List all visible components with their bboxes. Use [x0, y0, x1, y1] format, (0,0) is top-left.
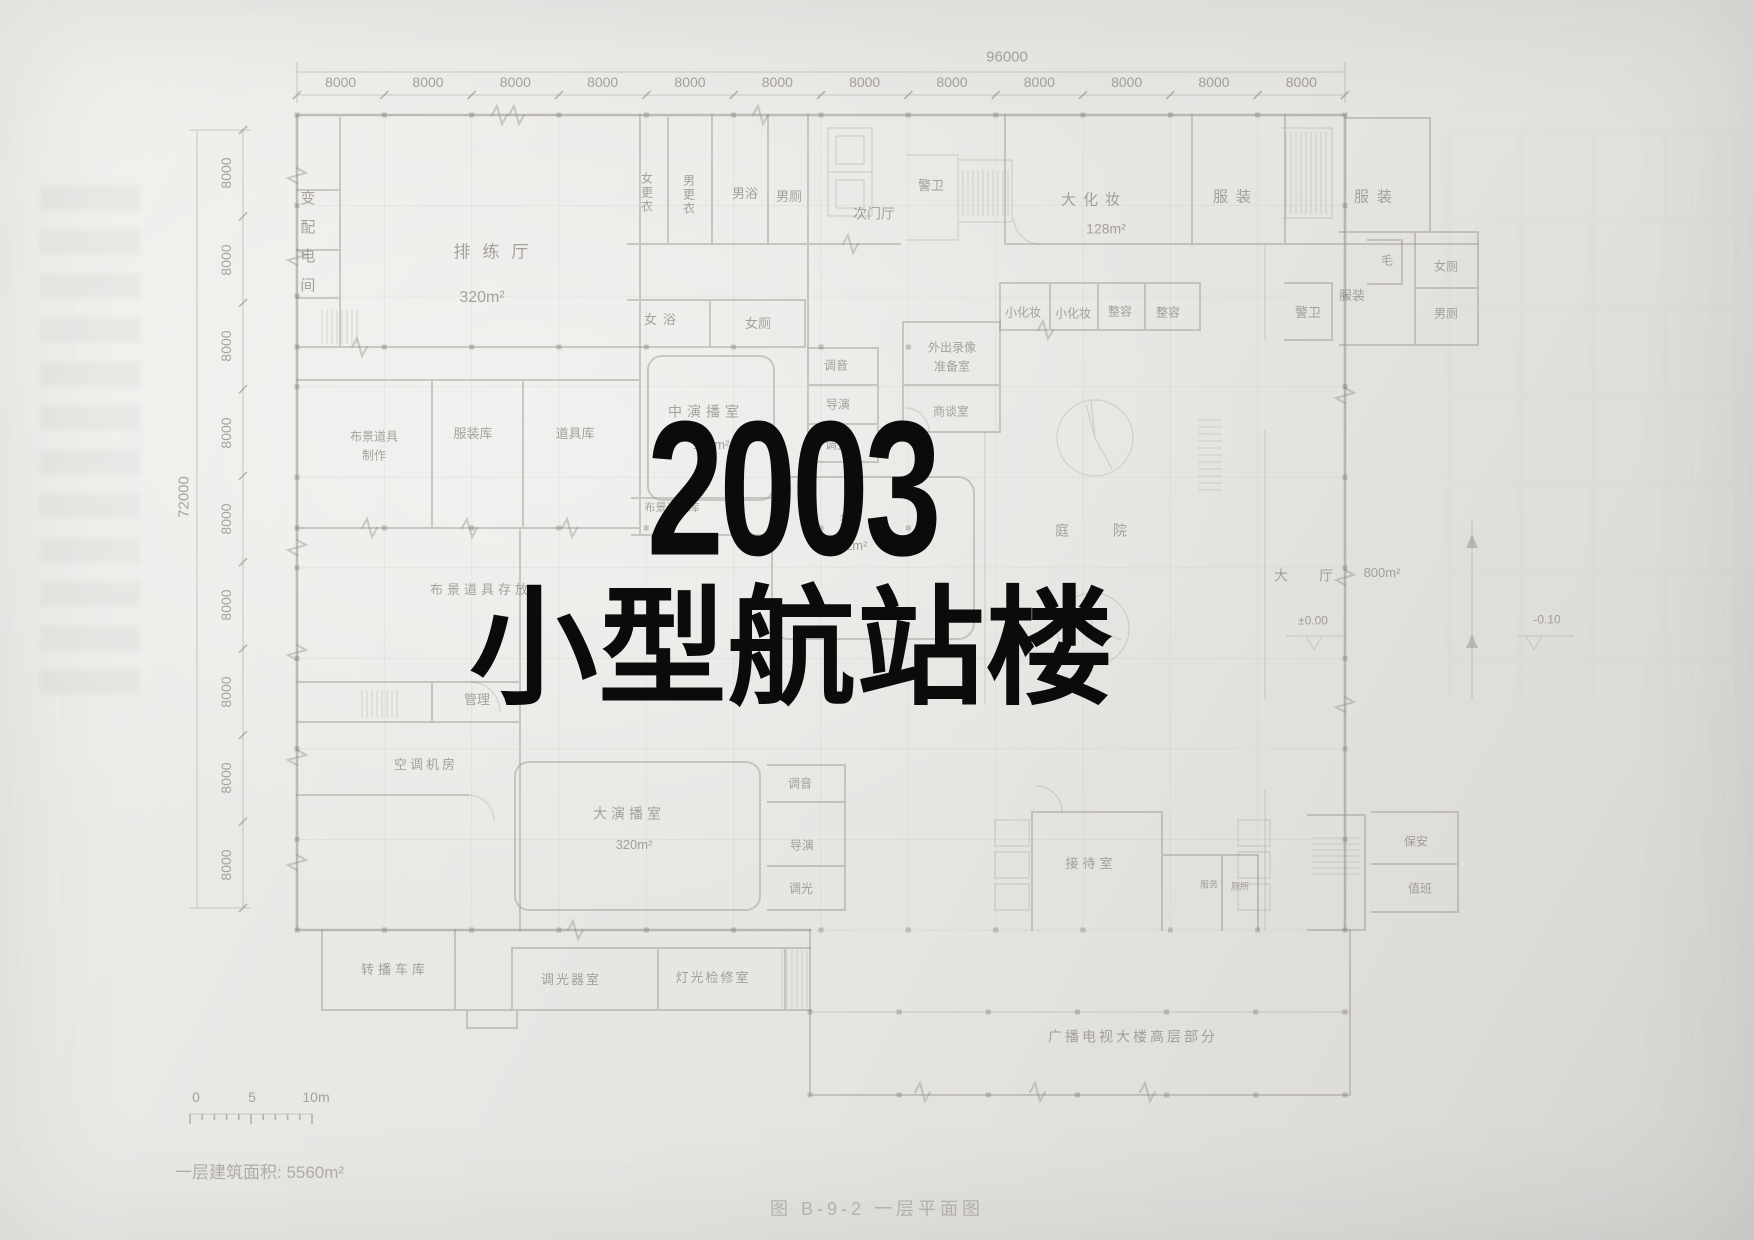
dimension-bay-label: 8000 — [1198, 74, 1229, 90]
room-label: 男厕 — [1434, 307, 1458, 322]
room-label: 服装 — [1354, 189, 1400, 208]
dimension-bay-label: 8000 — [587, 74, 618, 90]
dimension-bay-label: 8000 — [218, 417, 234, 448]
room-label: 女厕 — [745, 316, 771, 332]
dimension-bay-label: 8000 — [218, 849, 234, 880]
room-label: 女更衣 — [639, 172, 654, 214]
room-label: 服装 — [1213, 189, 1259, 208]
room-label: 320m² — [459, 288, 504, 308]
room-label: 大 — [1274, 567, 1288, 585]
room-label: 布景道具 制作 — [350, 427, 398, 464]
room-label: 大化妆 — [1061, 192, 1127, 211]
dimension-bay-label: 8000 — [218, 763, 234, 794]
dimension-top-total: 96000 — [986, 49, 1028, 66]
room-label: 小化妆 — [1005, 306, 1041, 321]
dimension-bay-label: 8000 — [218, 676, 234, 707]
dimension-bay-label: 8000 — [218, 158, 234, 189]
room-label: 值班 — [1408, 882, 1432, 897]
room-label: 320m² — [616, 837, 653, 853]
floor-area-note: 一层建筑面积: 5560m² — [175, 1158, 344, 1183]
scale-bar-ten: 10m — [302, 1089, 329, 1105]
dimension-bay-label: 8000 — [849, 74, 880, 90]
dimension-bay-label: 8000 — [500, 74, 531, 90]
room-label: 排练厅 — [454, 241, 541, 262]
room-label: 调光 — [789, 882, 813, 897]
dimension-bay-label: 8000 — [325, 74, 356, 90]
room-label: 调音 — [788, 777, 812, 792]
room-label: 800m² — [1364, 565, 1401, 581]
level-marker-label: ±0.00 — [1298, 614, 1328, 629]
room-label: 厕所 — [1231, 881, 1249, 892]
room-label: 外出录像 准备室 — [928, 338, 976, 375]
room-label: 变配电间 — [297, 190, 316, 306]
dimension-bay-label: 8000 — [218, 503, 234, 534]
room-label: 空调机房 — [394, 757, 458, 773]
room-label: 灯光检修室 — [675, 970, 750, 986]
dimension-bay-label: 8000 — [1286, 74, 1317, 90]
room-label: 转播车库 — [361, 962, 429, 978]
room-label: 毛 — [1381, 254, 1393, 269]
room-label: 服务 — [1200, 879, 1218, 890]
room-label: 服装库 — [453, 426, 492, 442]
dimension-bay-label: 8000 — [218, 331, 234, 362]
room-label: 接待室 — [1065, 856, 1116, 872]
room-label: 次门厅 — [853, 205, 895, 223]
dimension-bay-label: 8000 — [762, 74, 793, 90]
dimension-bay-label: 8000 — [936, 74, 967, 90]
room-label: 女厕 — [1434, 260, 1458, 275]
room-label: 整容 — [1108, 305, 1132, 320]
room-label: 道具库 — [555, 426, 594, 442]
room-label: 大演播室 — [593, 805, 665, 823]
room-label: 导演 — [790, 839, 814, 854]
photographed-blueprint-sheet: 96000 72000 8000800080008000800080008000… — [0, 0, 1754, 1240]
room-label: 厅 — [1319, 567, 1333, 585]
room-label: 男厕 — [776, 189, 802, 205]
room-label: 128m² — [1086, 220, 1126, 238]
room-label: 商谈室 — [933, 405, 969, 420]
figure-caption: 图 B-9-2 一层平面图 — [770, 1195, 984, 1221]
room-label: 服装 — [1339, 288, 1365, 304]
room-label: 庭 — [1055, 522, 1069, 540]
scale-bar-zero: 0 — [192, 1089, 200, 1105]
room-label: 男浴 — [732, 186, 758, 202]
room-label: 调音 — [824, 359, 848, 374]
overlay-title-name: 小型航站楼 — [469, 545, 1114, 730]
room-label: 警卫 — [1295, 305, 1321, 321]
room-label: 广播电视大楼高层部分 — [1048, 1028, 1218, 1046]
room-label: 警卫 — [918, 178, 944, 194]
dimension-bay-label: 8000 — [1111, 74, 1142, 90]
room-label: 男更衣 — [681, 174, 696, 216]
level-marker-label: -0.10 — [1533, 613, 1560, 628]
dimension-bay-label: 8000 — [218, 244, 234, 275]
room-label: 调光器室 — [541, 972, 601, 988]
room-label: 整容 — [1156, 306, 1180, 321]
dimension-bay-label: 8000 — [218, 590, 234, 621]
room-label: 保安 — [1404, 835, 1428, 850]
dimension-bay-label: 8000 — [1024, 74, 1055, 90]
dimension-bay-label: 8000 — [674, 74, 705, 90]
scale-bar-five: 5 — [248, 1089, 256, 1105]
dimension-bay-label: 8000 — [412, 74, 443, 90]
dimension-left-total: 72000 — [176, 476, 193, 518]
room-label: 小化妆 — [1055, 307, 1091, 322]
room-label: 女浴 — [644, 312, 682, 328]
room-label: 院 — [1113, 522, 1127, 540]
